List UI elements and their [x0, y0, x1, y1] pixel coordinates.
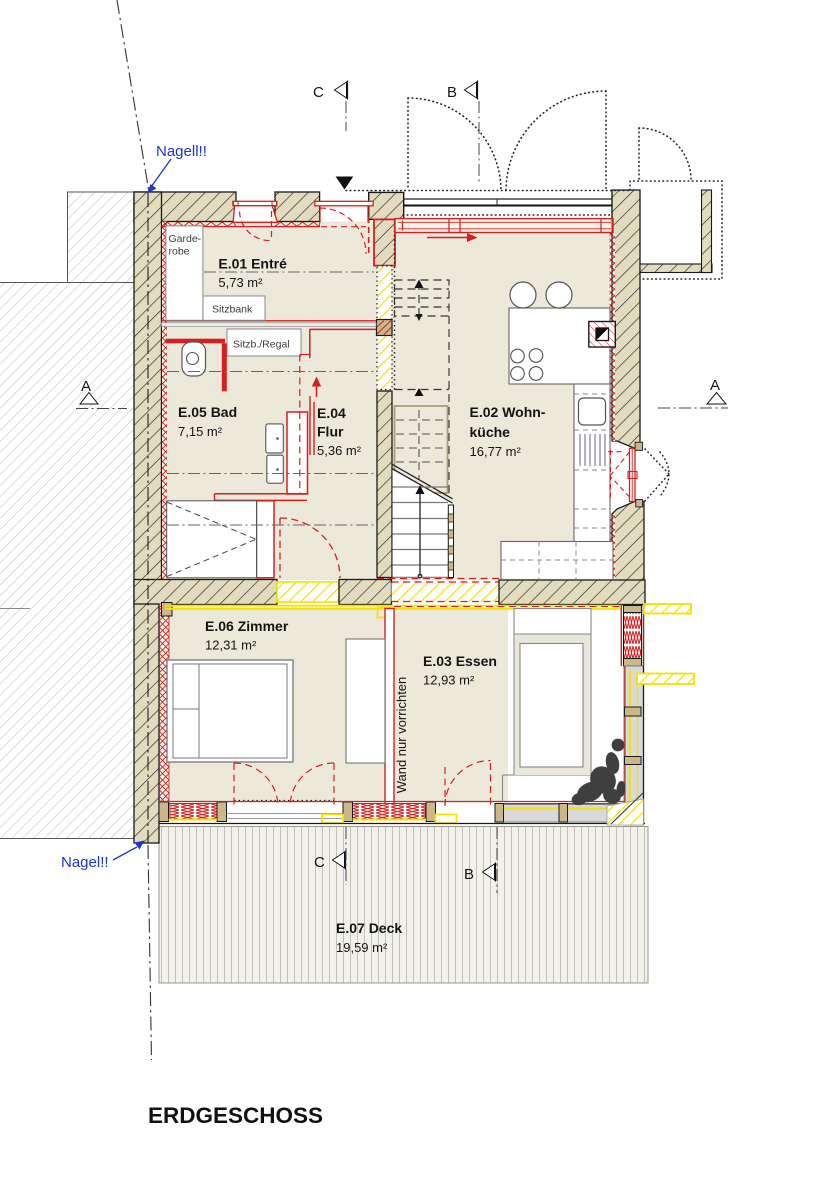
svg-text:Flur: Flur: [317, 424, 344, 440]
svg-text:5,36 m²: 5,36 m²: [317, 443, 362, 458]
svg-text:E.03 Essen: E.03 Essen: [423, 653, 497, 669]
svg-text:C: C: [313, 84, 324, 101]
svg-text:7,15 m²: 7,15 m²: [178, 424, 223, 439]
svg-text:Garde-: Garde-: [169, 233, 202, 245]
svg-text:19,59 m²: 19,59 m²: [336, 940, 388, 955]
svg-text:E.02 Wohn-: E.02 Wohn-: [470, 404, 546, 420]
svg-text:ERDGESCHOSS: ERDGESCHOSS: [148, 1103, 323, 1128]
svg-text:C: C: [314, 854, 325, 871]
svg-text:16,77 m²: 16,77 m²: [470, 444, 522, 459]
svg-text:küche: küche: [470, 424, 511, 440]
svg-text:A: A: [710, 377, 720, 394]
svg-text:Sitzbank: Sitzbank: [212, 304, 253, 316]
svg-text:robe: robe: [169, 246, 190, 258]
svg-text:B: B: [447, 84, 457, 101]
svg-text:E.01 Entré: E.01 Entré: [218, 256, 287, 272]
svg-text:E.07 Deck: E.07 Deck: [336, 920, 402, 936]
svg-text:Wand nur vorrichten: Wand nur vorrichten: [394, 677, 409, 794]
svg-text:5,73 m²: 5,73 m²: [218, 275, 263, 290]
svg-text:Nagell!!: Nagell!!: [156, 143, 207, 160]
svg-text:Nagel!!: Nagel!!: [61, 854, 109, 871]
svg-text:E.04: E.04: [317, 405, 346, 421]
svg-text:12,31 m²: 12,31 m²: [205, 638, 257, 653]
svg-text:E.06 Zimmer: E.06 Zimmer: [205, 618, 289, 634]
svg-text:Sitzb./Regal: Sitzb./Regal: [233, 339, 290, 351]
svg-text:B: B: [464, 866, 474, 883]
svg-text:E.05 Bad: E.05 Bad: [178, 404, 237, 420]
svg-text:12,93 m²: 12,93 m²: [423, 673, 475, 688]
